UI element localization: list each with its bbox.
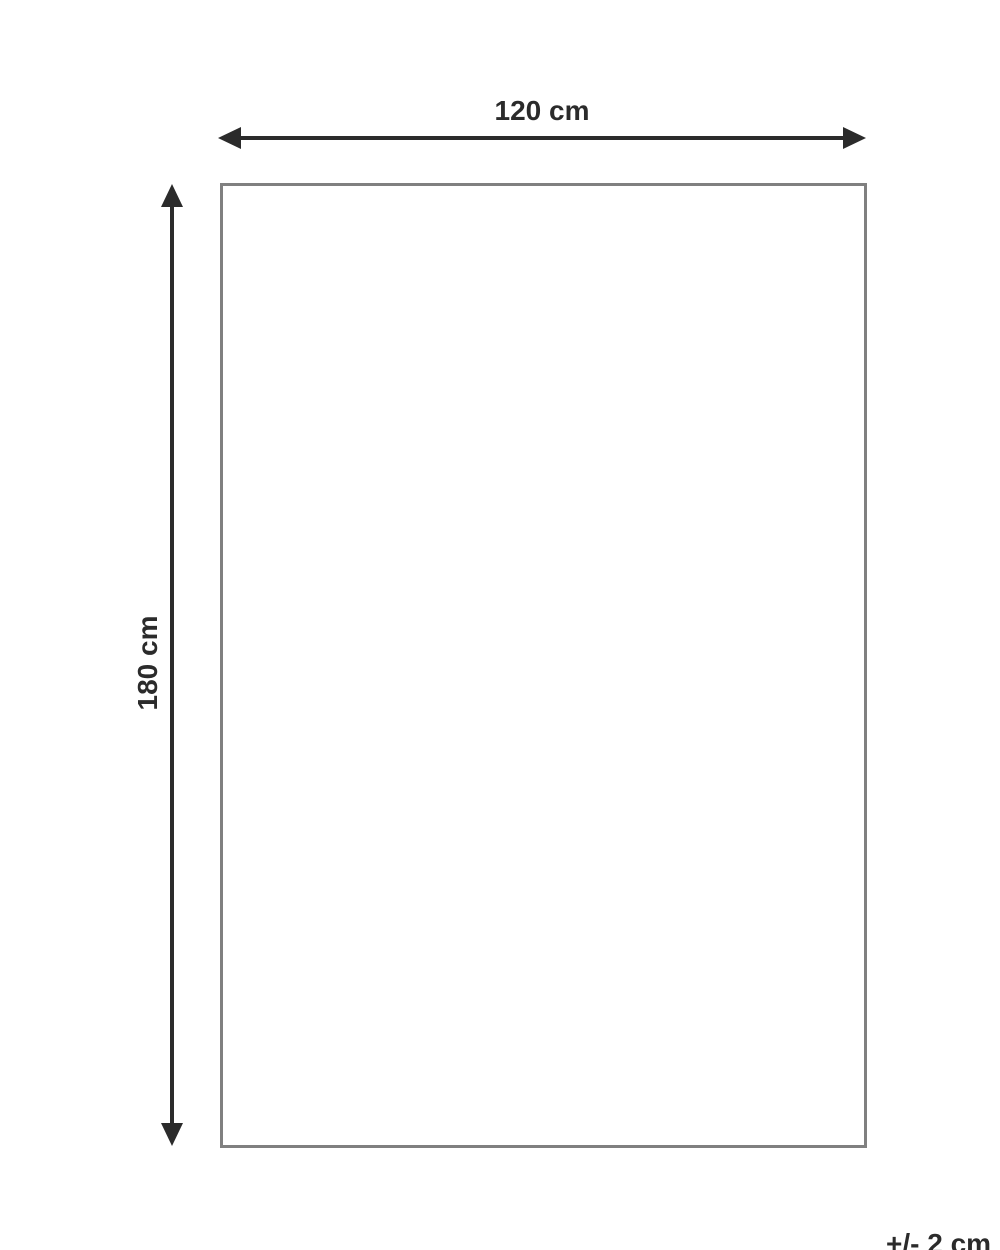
width-label: 120 cm [218, 97, 866, 125]
arrowhead-down-icon [161, 1123, 183, 1146]
height-arrow-shaft [170, 204, 174, 1126]
height-arrow [161, 184, 183, 1146]
tolerance-label: +/- 2 cm [886, 1230, 991, 1250]
width-arrow-shaft [238, 136, 846, 140]
arrowhead-right-icon [843, 127, 866, 149]
product-outline [220, 183, 867, 1148]
height-label: 180 cm [134, 616, 162, 711]
dimension-diagram: 120 cm 180 cm +/- 2 cm [0, 0, 1000, 1250]
width-arrow [218, 127, 866, 149]
